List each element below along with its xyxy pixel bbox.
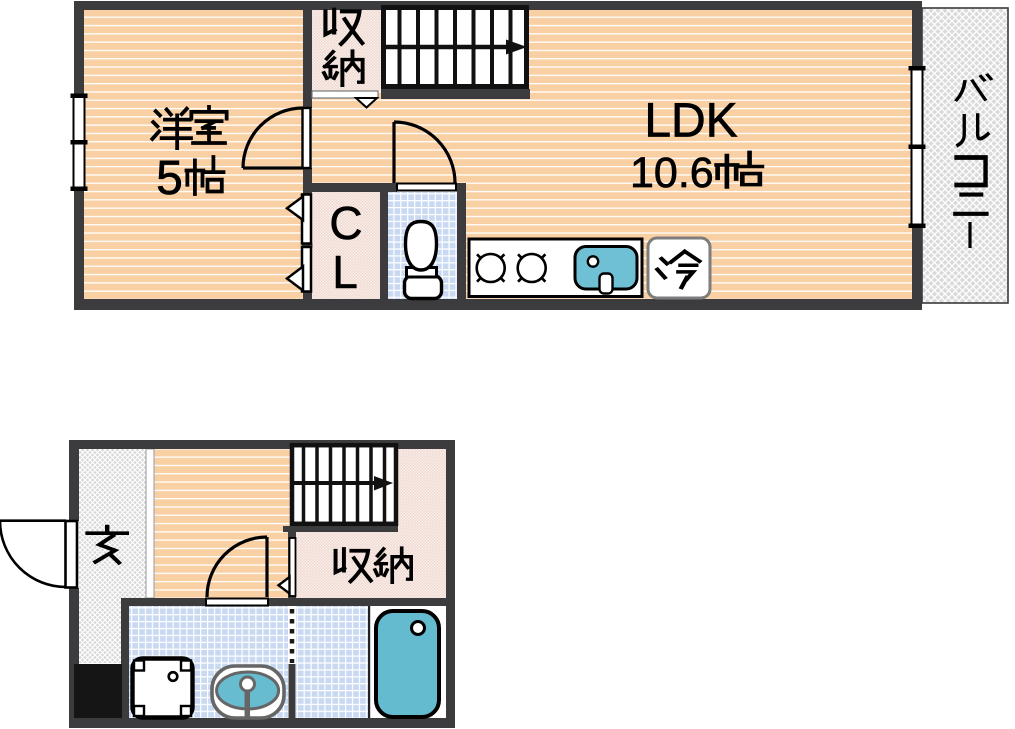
svg-text:LDK: LDK	[644, 95, 737, 148]
svg-text:10.6: 10.6	[630, 149, 714, 197]
svg-text:L: L	[332, 246, 358, 298]
svg-text:5: 5	[156, 152, 183, 205]
svg-text:C: C	[329, 197, 362, 249]
